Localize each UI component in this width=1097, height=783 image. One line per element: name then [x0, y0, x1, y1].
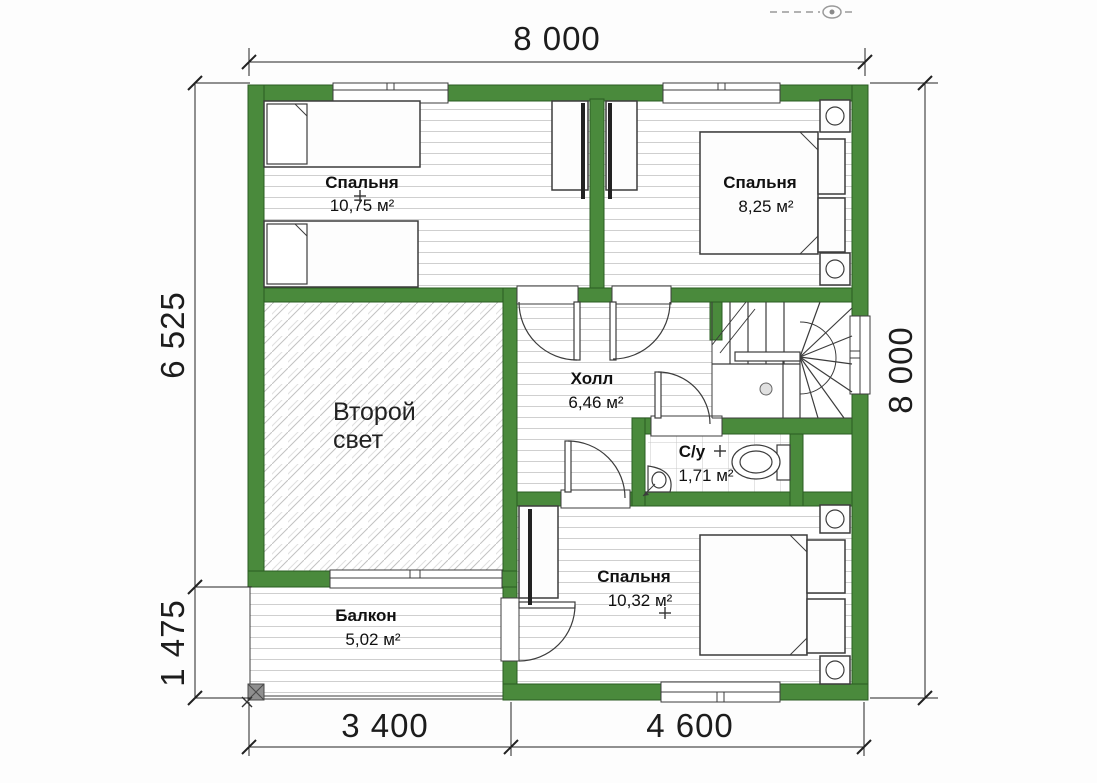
window-right-stairs	[850, 316, 870, 394]
wardrobe-bottom	[519, 506, 558, 605]
window-top-left	[333, 83, 448, 103]
wall-between-bedrooms	[590, 99, 604, 288]
dimension-left-lower-value: 1 475	[154, 599, 191, 687]
wardrobe-right	[606, 101, 637, 199]
wall-exterior-left	[248, 85, 264, 587]
wardrobe-left	[552, 101, 588, 199]
room-area-balcony: 5,02 м²	[345, 630, 400, 649]
room-label-second-light-line1: Второй	[333, 398, 416, 426]
floor-plan: Спальня 10,75 м² Спальня 8,25 м² Холл 6,…	[0, 0, 1097, 783]
watermark	[770, 6, 857, 18]
dimension-left: 6 525 1 475	[154, 76, 252, 705]
room-label-bathroom: С/у	[679, 442, 706, 461]
floor-second-light-void	[264, 302, 503, 571]
dimension-right-value: 8 000	[882, 326, 919, 414]
window-top-right	[663, 83, 780, 103]
wall-bathroom-right	[790, 434, 803, 506]
nightstand-lamp-top	[820, 505, 850, 533]
stairs-handrail	[735, 352, 800, 361]
nightstand-lamp-bottom	[820, 253, 850, 285]
wall-bathroom-left	[632, 418, 645, 506]
dimension-right: 8 000	[870, 76, 938, 705]
room-label-hall: Холл	[571, 369, 614, 388]
dimension-bottom-right-value: 4 600	[646, 707, 734, 744]
bed-single-2	[264, 221, 418, 287]
window-bottom-bedroom	[661, 682, 780, 702]
room-area-bathroom: 1,71 м²	[678, 466, 733, 485]
room-area-hall: 6,46 м²	[568, 393, 623, 412]
room-label-bedroom-top-left: Спальня	[325, 173, 398, 192]
room-area-bedroom-top-left: 10,75 м²	[330, 196, 395, 215]
room-label-bedroom-bottom: Спальня	[597, 567, 670, 586]
room-label-bedroom-top-right: Спальня	[723, 173, 796, 192]
room-label-second-light-line2: свет	[333, 426, 384, 454]
bed-single-1	[264, 101, 420, 167]
room-area-bedroom-top-right: 8,25 м²	[738, 197, 793, 216]
eye-icon	[823, 6, 841, 18]
dimension-bottom: 3 400 4 600	[242, 702, 871, 756]
room-label-balcony: Балкон	[335, 606, 396, 625]
bed-double	[700, 132, 845, 254]
room-area-bedroom-bottom: 10,32 м²	[608, 591, 673, 610]
stairs-newel-post	[760, 383, 772, 395]
nightstand-lamp-bottom	[820, 656, 850, 684]
toilet	[732, 445, 790, 480]
dimension-left-upper-value: 6 525	[154, 291, 191, 379]
dimension-top-value: 8 000	[513, 20, 601, 57]
dimension-top: 8 000	[242, 20, 872, 76]
nightstand-lamp-top	[820, 100, 850, 132]
dimension-bottom-left-value: 3 400	[341, 707, 429, 744]
floor-plan-page: Спальня 10,75 м² Спальня 8,25 м² Холл 6,…	[0, 0, 1097, 783]
window-second-light-balcony	[330, 570, 502, 588]
